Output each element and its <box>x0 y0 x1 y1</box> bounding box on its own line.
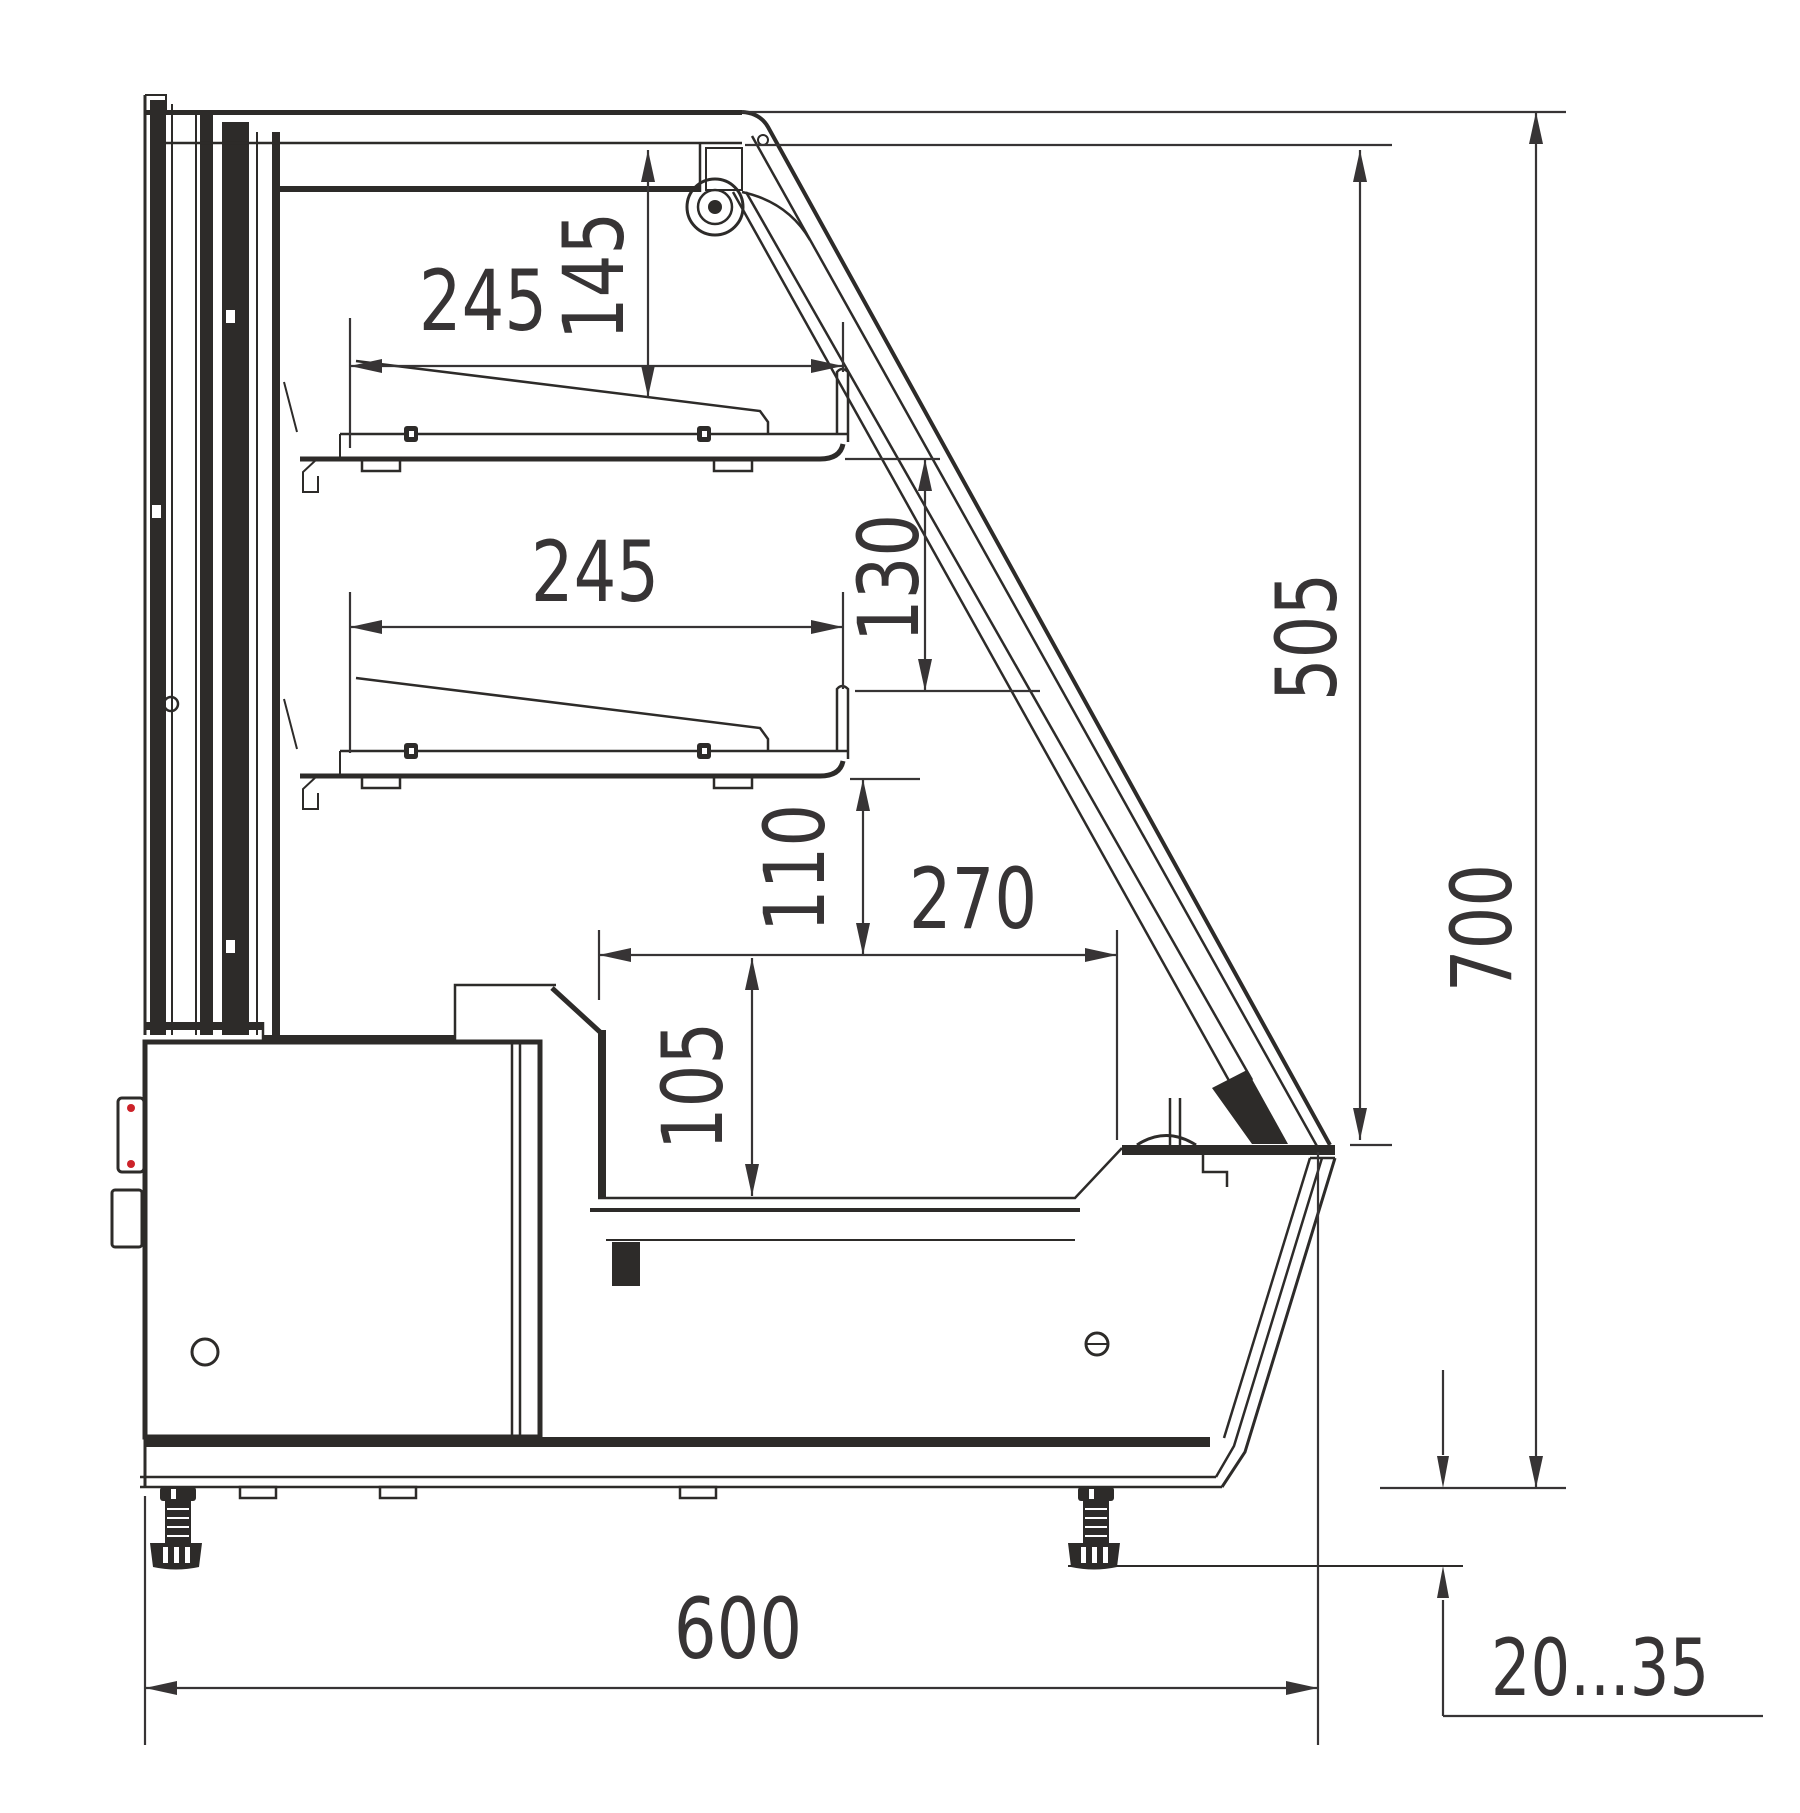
svg-text:600: 600 <box>674 1580 802 1678</box>
front-panel <box>1203 1155 1335 1487</box>
compartment-switch <box>112 1098 144 1247</box>
svg-text:700: 700 <box>1433 864 1531 992</box>
canopy-roller <box>687 179 743 235</box>
adjustable-foot-right <box>1068 1487 1120 1570</box>
svg-text:505: 505 <box>1258 573 1356 701</box>
dim-foot-adjustment: 20...35 <box>1437 1370 1763 1716</box>
svg-text:145: 145 <box>545 212 643 340</box>
dim-shelf2-width: 245 <box>350 523 843 753</box>
technical-drawing: 245 145 245 130 110 270 10 <box>0 0 1800 1813</box>
svg-text:245: 245 <box>419 252 547 350</box>
base-frame <box>140 1437 1222 1498</box>
svg-text:130: 130 <box>840 514 938 642</box>
machinery-compartment <box>145 1022 540 1437</box>
svg-text:110: 110 <box>746 804 844 932</box>
back-panel <box>145 95 280 1035</box>
svg-text:270: 270 <box>909 850 1037 948</box>
adjustable-foot-left <box>150 1487 202 1570</box>
svg-text:20...35: 20...35 <box>1491 1622 1709 1714</box>
shelf-lower <box>284 678 849 809</box>
shelf-upper <box>284 361 849 492</box>
drawing-canvas: 245 145 245 130 110 270 10 <box>0 0 1800 1813</box>
svg-text:245: 245 <box>531 523 659 621</box>
dim-well-clearance: 110 <box>746 779 920 955</box>
dim-well-depth: 105 <box>644 958 759 1196</box>
svg-text:105: 105 <box>644 1022 742 1150</box>
